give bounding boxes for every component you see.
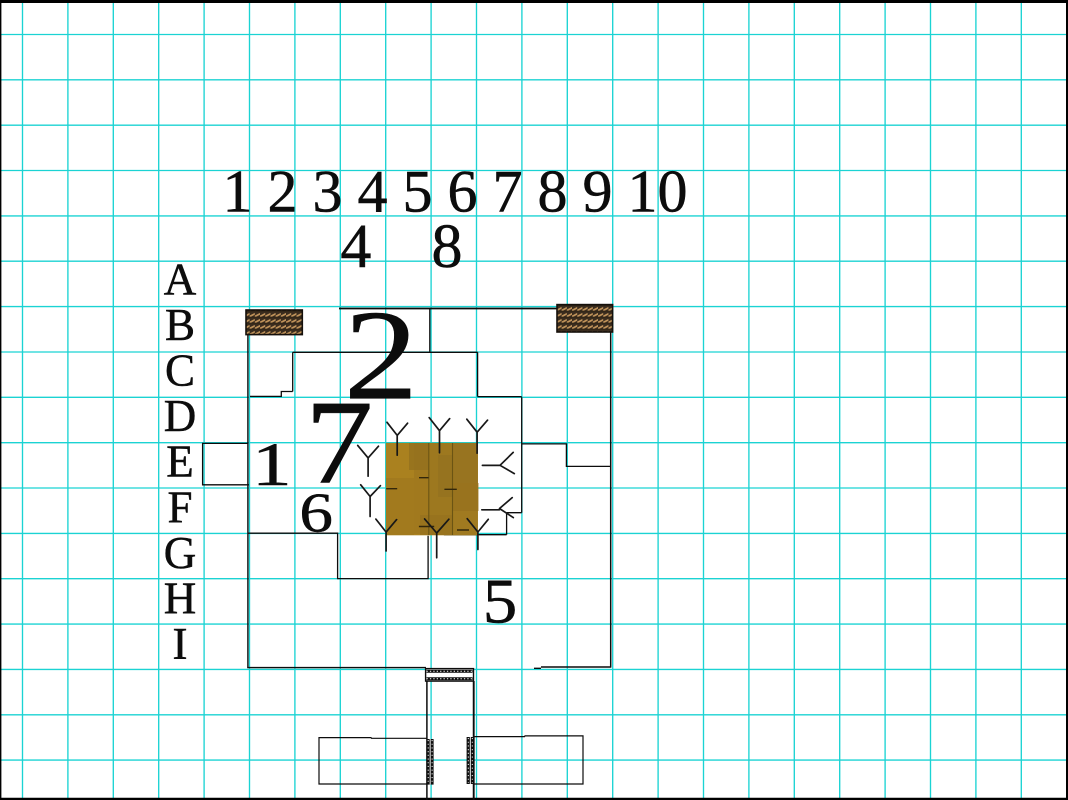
svg-text:E: E [166,437,194,487]
svg-text:D: D [164,391,197,441]
svg-text:5: 5 [483,567,518,637]
svg-text:6: 6 [299,483,333,545]
svg-text:H: H [164,574,197,624]
svg-text:C: C [165,346,195,396]
svg-text:I: I [173,619,188,669]
svg-text:1: 1 [252,431,292,498]
svg-text:4: 4 [340,213,371,281]
svg-text:F: F [167,482,192,532]
svg-text:B: B [165,300,195,350]
svg-text:A: A [164,254,197,304]
svg-text:G: G [164,528,197,578]
svg-text:8: 8 [432,213,463,281]
